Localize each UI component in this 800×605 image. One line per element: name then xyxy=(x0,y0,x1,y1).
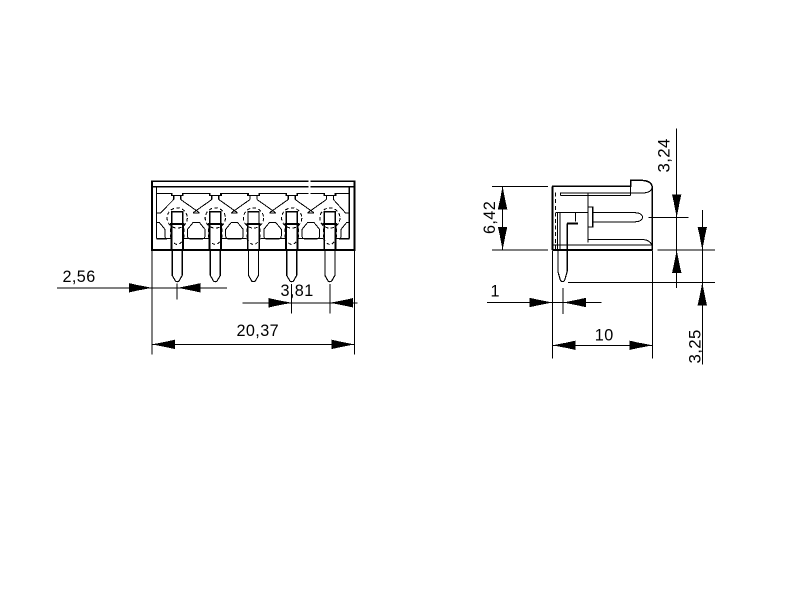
svg-text:10: 10 xyxy=(595,326,614,344)
svg-text:3,81: 3,81 xyxy=(281,282,314,300)
svg-text:6,42: 6,42 xyxy=(481,201,499,234)
svg-text:3,25: 3,25 xyxy=(686,329,705,363)
svg-text:20,37: 20,37 xyxy=(237,322,280,340)
svg-text:2,56: 2,56 xyxy=(63,268,96,286)
svg-text:3,24: 3,24 xyxy=(655,138,674,172)
svg-text:1: 1 xyxy=(491,282,500,300)
